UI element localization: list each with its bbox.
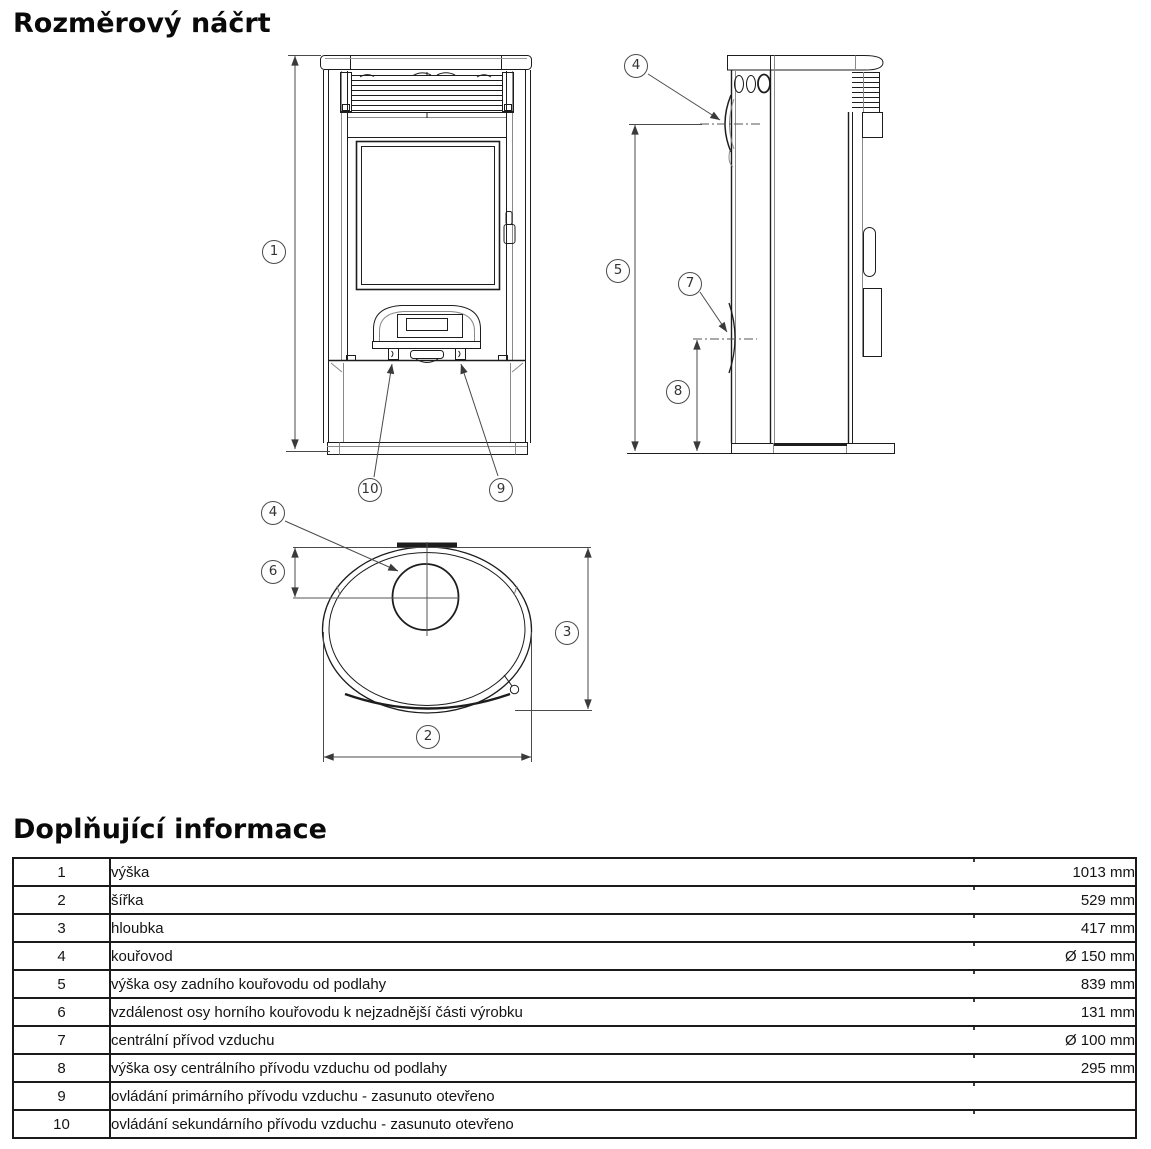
info-table: 1 výška 1013 mm 2 šířka 529 mm 3 hloubka… (12, 857, 1137, 1139)
table-row: 5 výška osy zadního kouřovodu od podlahy… (13, 970, 1136, 998)
row-number: 2 (13, 886, 110, 914)
row-label: vzdálenost osy horního kouřovodu k nejza… (110, 998, 973, 1026)
row-label: výška osy centrálního přívodu vzduchu od… (110, 1054, 973, 1082)
secondary-air-knob (389, 349, 399, 360)
callout-1: 1 (262, 240, 286, 264)
front-door-handle (504, 212, 515, 244)
table-row: 9 ovládání primárního přívodu vzduchu - … (13, 1082, 1136, 1110)
callout-9: 9 (489, 478, 513, 502)
row-number: 10 (13, 1110, 110, 1138)
table-row: 6 vzdálenost osy horního kouřovodu k nej… (13, 998, 1136, 1026)
leader-7 (700, 292, 727, 332)
row-label: výška (110, 858, 973, 886)
row-number: 7 (13, 1026, 110, 1054)
row-value: 417 mm (973, 914, 1136, 942)
callout-4-side: 4 (624, 54, 648, 78)
row-value (973, 1082, 1136, 1110)
row-number: 8 (13, 1054, 110, 1082)
callout-5: 5 (606, 259, 630, 283)
table-row: 1 výška 1013 mm (13, 858, 1136, 886)
side-top-vents (735, 75, 771, 93)
row-value: 295 mm (973, 1054, 1136, 1082)
row-number: 6 (13, 998, 110, 1026)
dimension-lines (285, 56, 895, 763)
front-top-plate (321, 56, 532, 70)
front-door-glass (348, 138, 506, 290)
row-value: 131 mm (973, 998, 1136, 1026)
callout-3: 3 (555, 621, 579, 645)
callout-7: 7 (678, 272, 702, 296)
side-top-plate (728, 56, 884, 71)
row-value: 529 mm (973, 886, 1136, 914)
primary-air-knob (456, 349, 466, 360)
row-number: 1 (13, 858, 110, 886)
leader-10 (374, 364, 392, 477)
row-label: ovládání sekundárního přívodu vzduchu - … (110, 1110, 973, 1138)
row-label: hloubka (110, 914, 973, 942)
row-value: 1013 mm (973, 858, 1136, 886)
table-row: 4 kouřovod Ø 150 mm (13, 942, 1136, 970)
row-value (973, 1110, 1136, 1138)
table-row: 2 šířka 529 mm (13, 886, 1136, 914)
section-title: Doplňující informace (13, 814, 327, 845)
front-vent-grill (340, 72, 514, 118)
table-row: 10 ovládání sekundárního přívodu vzduchu… (13, 1110, 1136, 1138)
side-view (693, 56, 895, 454)
row-number: 4 (13, 942, 110, 970)
side-base (731, 443, 895, 453)
front-view (321, 56, 532, 455)
rear-flue-collar (725, 95, 734, 167)
table-row: 3 hloubka 417 mm (13, 914, 1136, 942)
front-pedestal (327, 356, 528, 455)
callout-8: 8 (666, 380, 690, 404)
callout-6: 6 (261, 560, 285, 584)
leader-9 (461, 364, 498, 476)
leader-4-side (648, 74, 720, 120)
top-flue-outlet (393, 564, 459, 630)
table-row: 8 výška osy centrálního přívodu vzduchu … (13, 1054, 1136, 1082)
row-label: ovládání primárního přívodu vzduchu - za… (110, 1082, 973, 1110)
row-value: Ø 100 mm (973, 1026, 1136, 1054)
row-value: 839 mm (973, 970, 1136, 998)
row-number: 9 (13, 1082, 110, 1110)
page: Rozměrový náčrt (0, 0, 1151, 1149)
row-value: Ø 150 mm (973, 942, 1136, 970)
row-number: 3 (13, 914, 110, 942)
row-label: centrální přívod vzduchu (110, 1026, 973, 1054)
row-number: 5 (13, 970, 110, 998)
table-row: 7 centrální přívod vzduchu Ø 100 mm (13, 1026, 1136, 1054)
top-view (293, 542, 532, 713)
side-vent-louvers (852, 72, 883, 138)
callout-4-top: 4 (261, 501, 285, 525)
callout-2: 2 (416, 725, 440, 749)
dimensional-drawing (0, 0, 1151, 800)
callout-10: 10 (358, 478, 382, 502)
front-control-panel (372, 306, 481, 363)
side-door-handle (864, 228, 882, 357)
row-label: šířka (110, 886, 973, 914)
row-label: výška osy zadního kouřovodu od podlahy (110, 970, 973, 998)
leader-4-top (285, 521, 398, 571)
row-label: kouřovod (110, 942, 973, 970)
